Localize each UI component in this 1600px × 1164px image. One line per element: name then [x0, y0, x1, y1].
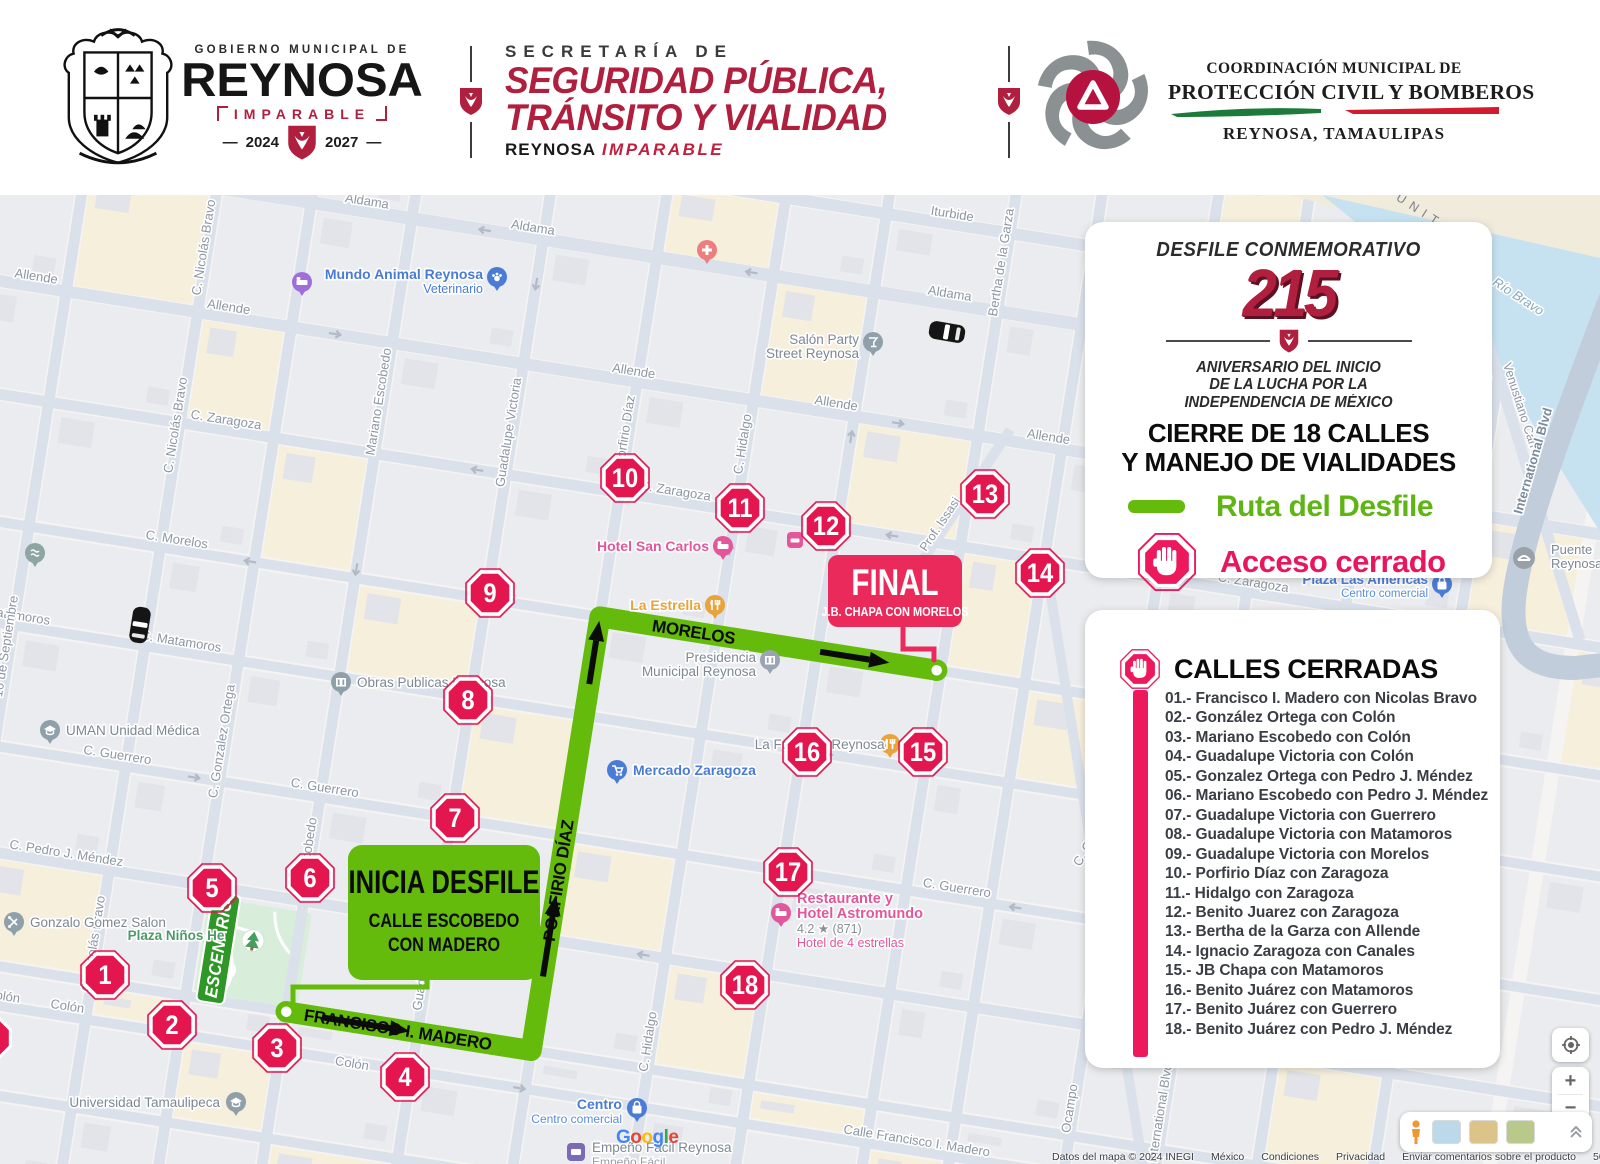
header: GOBIERNO MUNICIPAL DE REYNOSA IMPARABLE …	[0, 0, 1600, 195]
map-marker-16: 16	[783, 728, 831, 776]
map-marker-10: 10	[601, 454, 649, 502]
map-marker-5: 5	[188, 864, 236, 912]
flag-swoosh-icon	[1169, 105, 1499, 118]
legend-subtitle-1: ANIVERSARIO DEL INICIO	[1095, 359, 1482, 377]
legend-heading-1: CIERRE DE 18 CALLES	[1085, 419, 1492, 448]
stop-hand-icon	[1138, 533, 1196, 591]
route-end-cap	[928, 661, 946, 679]
secretaria-brand2: IMPARABLE	[602, 140, 724, 159]
collapse-chevrons-icon[interactable]	[1568, 1124, 1584, 1140]
svg-text:INICIA DESFILE: INICIA DESFILE	[348, 865, 539, 900]
closed-street-item: 13.- Bertha de la Garza con Allende	[1165, 922, 1490, 941]
svg-text:14: 14	[1027, 559, 1053, 589]
stop-hand-icon	[1119, 648, 1161, 690]
svg-text:13: 13	[972, 480, 998, 510]
map-marker-2: 2	[148, 1001, 196, 1049]
attribution-terms-link[interactable]: Condiciones	[1261, 1151, 1319, 1163]
closed-street-item: 09.- Guadalupe Victoria con Morelos	[1165, 845, 1490, 864]
map-marker-8: 8	[444, 676, 492, 724]
svg-text:Puente: Puente	[1551, 542, 1592, 557]
svg-text:6: 6	[303, 864, 316, 894]
legend-heading-2: Y MANEJO DE VIALIDADES	[1085, 448, 1492, 477]
map-marker-3: 3	[253, 1024, 301, 1072]
bridge-icon	[1513, 547, 1535, 569]
svg-text:La Estrella: La Estrella	[630, 597, 701, 613]
svg-text:7: 7	[448, 804, 461, 834]
svg-text:Universidad Tamaulipeca: Universidad Tamaulipeca	[69, 1095, 220, 1110]
svg-text:Reynosa: Reynosa	[831, 737, 885, 752]
map-marker-4: 4	[381, 1053, 429, 1101]
legend-subtitle-2: DE LA LUCHA POR LA	[1095, 376, 1482, 394]
closed-street-item: 11.- Hidalgo con Zaragoza	[1165, 884, 1490, 903]
proteccion-civil-emblem	[1032, 30, 1154, 164]
layers-control[interactable]	[1400, 1112, 1592, 1152]
closed-streets-title: CALLES CERRADAS	[1174, 654, 1438, 685]
gobierno-name: REYNOSA	[178, 56, 426, 104]
svg-text:3: 3	[270, 1034, 283, 1064]
parade-flyer: GOBIERNO MUNICIPAL DE REYNOSA IMPARABLE …	[0, 0, 1600, 1164]
secretaria-block: SECRETARÍA DE SEGURIDAD PÚBLICA, TRÁNSIT…	[505, 42, 975, 160]
secretaria-pre: SECRETARÍA DE	[505, 42, 975, 62]
reynosa-shield-icon	[287, 125, 317, 161]
map-marker-6: 6	[286, 854, 334, 902]
svg-text:12: 12	[813, 512, 839, 542]
closed-street-item: 05.- Gonzalez Ortega con Pedro J. Méndez	[1165, 767, 1490, 786]
map-marker-1: 1	[81, 951, 129, 999]
svg-text:Reynosa: Reynosa	[1551, 556, 1600, 571]
pc-name: PROTECCIÓN CIVIL Y BOMBEROS	[1168, 80, 1500, 105]
pegman-icon[interactable]	[1408, 1119, 1424, 1145]
reynosa-shield-icon	[1278, 328, 1300, 355]
svg-text:Street Reynosa: Street Reynosa	[766, 346, 860, 361]
map-marker-9: 9	[466, 569, 514, 617]
svg-text:8: 8	[461, 686, 474, 716]
closed-legend-label: Acceso cerrado	[1220, 544, 1446, 580]
attribution-privacy-link[interactable]: Privacidad	[1336, 1151, 1385, 1163]
svg-text:Hotel de 4 estrellas: Hotel de 4 estrellas	[797, 936, 904, 950]
svg-text:5: 5	[205, 874, 218, 904]
map-attribution: Datos del mapa © 2024 INEGI México Condi…	[1052, 1151, 1600, 1163]
map-marker-18: 18	[721, 961, 769, 1009]
closed-street-item: 17.- Benito Juárez con Guerrero	[1165, 1000, 1490, 1019]
svg-text:Mercado Zaragoza: Mercado Zaragoza	[633, 762, 756, 778]
secretaria-line1: SEGURIDAD PÚBLICA,	[505, 62, 956, 99]
svg-text:Centro comercial: Centro comercial	[531, 1112, 622, 1126]
layer-thumb-traffic[interactable]	[1506, 1120, 1535, 1144]
route-legend-label: Ruta del Desfile	[1216, 490, 1433, 524]
header-divider-right	[1008, 46, 1010, 158]
layer-thumb-satellite[interactable]	[1432, 1120, 1461, 1144]
closed-street-item: 01.- Francisco I. Madero con Nicolas Bra…	[1165, 689, 1490, 708]
google-logo[interactable]: Google	[616, 1127, 678, 1149]
route-map[interactable]: AllendeAllendeAllendeAllendeAllendeAllen…	[0, 195, 1600, 1164]
svg-text:4: 4	[398, 1063, 411, 1093]
svg-text:15: 15	[910, 738, 936, 768]
header-divider-left	[470, 46, 472, 158]
closed-streets-list: 01.- Francisco I. Madero con Nicolas Bra…	[1165, 689, 1490, 1039]
svg-text:La Fo: La Fo	[755, 737, 790, 752]
closed-street-item: 07.- Guadalupe Victoria con Guerrero	[1165, 806, 1490, 825]
svg-text:Empeño Fácil: Empeño Fácil	[592, 1155, 665, 1164]
closed-street-item: 12.- Benito Juarez con Zaragoza	[1165, 903, 1490, 922]
map-marker-11: 11	[716, 484, 764, 532]
map-marker-12: 12	[802, 502, 850, 550]
gobierno-reynosa-logo: GOBIERNO MUNICIPAL DE REYNOSA IMPARABLE …	[183, 44, 421, 161]
pc-place: REYNOSA, TAMAULIPAS	[1168, 124, 1500, 144]
map-marker-14: 14	[1016, 549, 1064, 597]
svg-text:Presidencia: Presidencia	[685, 650, 756, 665]
svg-text:11: 11	[727, 494, 752, 524]
layer-thumb-terrain[interactable]	[1469, 1120, 1498, 1144]
year-start: 2024	[246, 134, 279, 151]
closed-street-item: 15.- JB Chapa con Matamoros	[1165, 961, 1490, 980]
svg-text:Hotel Astromundo: Hotel Astromundo	[797, 906, 923, 922]
attribution-data: Datos del mapa © 2024 INEGI	[1052, 1151, 1194, 1163]
closed-street-item: 06.- Mariano Escobedo con Pedro J. Ménde…	[1165, 786, 1490, 805]
svg-text:Plaza Niños He: Plaza Niños He	[128, 928, 225, 943]
map-scale: 50 m	[1593, 1151, 1600, 1163]
pc-pre: COORDINACIÓN MUNICIPAL DE	[1168, 60, 1500, 78]
svg-text:17: 17	[775, 858, 801, 888]
svg-text:Hotel San Carlos: Hotel San Carlos	[597, 538, 709, 554]
attribution-feedback-link[interactable]: Enviar comentarios sobre el producto	[1402, 1151, 1576, 1163]
reynosa-shield-icon	[458, 86, 484, 118]
closed-street-item: 14.- Ignacio Zaragoza con Canales	[1165, 942, 1490, 961]
closed-street-item: 03.- Mariano Escobedo con Colón	[1165, 728, 1490, 747]
closed-streets-bar	[1133, 690, 1148, 1057]
svg-text:2: 2	[165, 1011, 178, 1041]
svg-text:18: 18	[732, 971, 758, 1001]
svg-text:4.2 ★ (871): 4.2 ★ (871)	[797, 922, 862, 936]
legend-divider	[1085, 328, 1492, 355]
anniversary-number: 215	[1101, 262, 1475, 326]
bracket-left-icon	[217, 106, 228, 121]
svg-text:Salón Party: Salón Party	[789, 332, 859, 347]
svg-text:CALLE ESCOBEDO: CALLE ESCOBEDO	[369, 910, 520, 932]
gobierno-tagline: IMPARABLE	[228, 106, 376, 122]
attribution-country: México	[1211, 1151, 1244, 1163]
legend-panel: DESFILE CONMEMORATIVO 215 ANIVERSARIO DE…	[1085, 222, 1492, 578]
my-location-button[interactable]	[1552, 1028, 1589, 1062]
closed-street-item: 02.- González Ortega con Colón	[1165, 708, 1490, 727]
closed-streets-panel: CALLES CERRADAS 01.- Francisco I. Madero…	[1085, 610, 1500, 1068]
legend-subtitle-3: INDEPENDENCIA DE MÉXICO	[1095, 394, 1482, 412]
svg-text:Municipal Reynosa: Municipal Reynosa	[642, 664, 757, 679]
route-color-swatch	[1128, 500, 1185, 513]
closed-street-item: 04.- Guadalupe Victoria con Colón	[1165, 747, 1490, 766]
reynosa-shield-icon	[996, 86, 1022, 118]
map-marker-15: 15	[899, 728, 947, 776]
svg-text:Centro: Centro	[577, 1096, 622, 1112]
secretaria-line2: TRÁNSITO Y VIALIDAD	[505, 99, 956, 136]
svg-text:Restaurante y: Restaurante y	[797, 891, 893, 907]
closed-street-item: 10.- Porfirio Díaz con Zaragoza	[1165, 864, 1490, 883]
svg-text:16: 16	[794, 738, 820, 768]
map-marker-7: 7	[431, 794, 479, 842]
svg-text:J.B. CHAPA CON MORELOS: J.B. CHAPA CON MORELOS	[821, 605, 968, 619]
svg-text:UMAN Unidad Médica: UMAN Unidad Médica	[66, 723, 200, 738]
closed-street-item: 18.- Benito Juárez con Pedro J. Méndez	[1165, 1020, 1490, 1039]
svg-text:10: 10	[612, 464, 638, 494]
year-end: 2027	[325, 134, 358, 151]
map-marker-17: 17	[764, 848, 812, 896]
svg-text:Veterinario: Veterinario	[423, 282, 483, 296]
svg-text:Mundo Animal Reynosa: Mundo Animal Reynosa	[325, 266, 483, 282]
bracket-right-icon	[376, 106, 387, 121]
map-marker-13: 13	[961, 470, 1009, 518]
scale-label: 50 m	[1593, 1151, 1600, 1163]
svg-text:1: 1	[98, 961, 111, 991]
closed-street-item: 08.- Guadalupe Victoria con Matamoros	[1165, 825, 1490, 844]
location-target-icon	[1562, 1036, 1580, 1054]
reynosa-coat-of-arms	[58, 26, 178, 170]
svg-text:9: 9	[483, 579, 496, 609]
proteccion-civil-block: COORDINACIÓN MUNICIPAL DE PROTECCIÓN CIV…	[1168, 60, 1500, 144]
closed-street-item: 16.- Benito Juárez con Matamoros	[1165, 981, 1490, 1000]
svg-text:CON MADERO: CON MADERO	[388, 934, 500, 956]
secretaria-brand1: REYNOSA	[505, 140, 596, 159]
zoom-in-button[interactable]: +	[1552, 1068, 1589, 1094]
svg-text:FINAL: FINAL	[851, 563, 938, 604]
